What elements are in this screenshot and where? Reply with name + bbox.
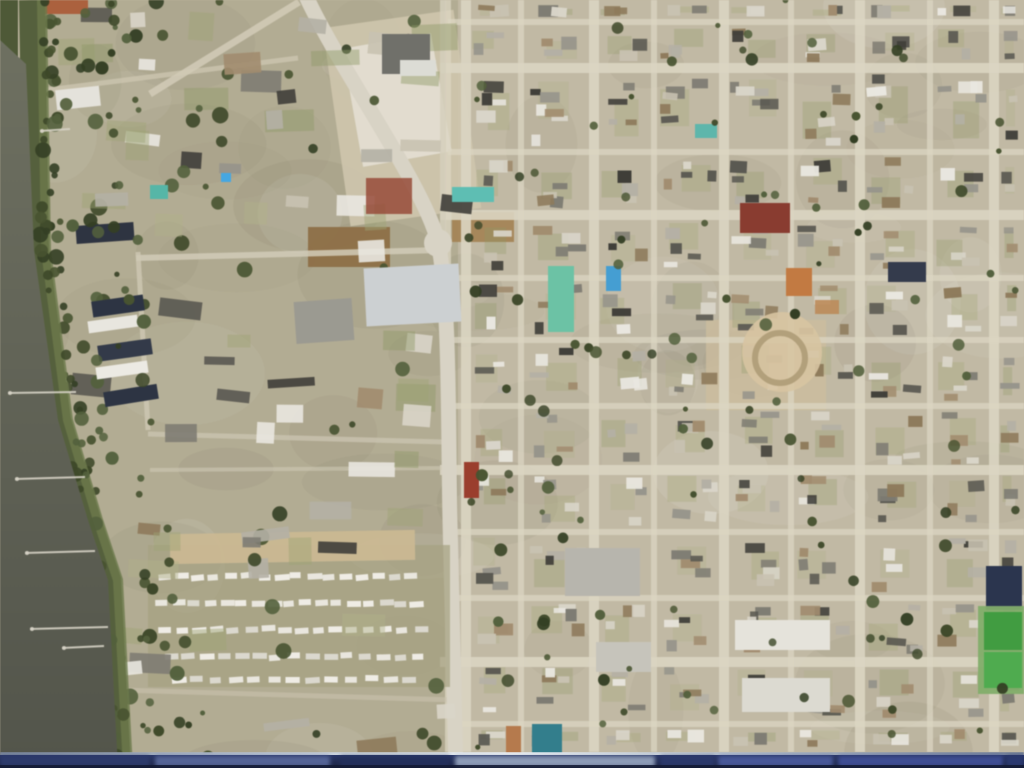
satellite-map-view[interactable] <box>0 0 1024 768</box>
screen <box>0 0 1024 768</box>
satellite-imagery <box>0 0 1024 768</box>
taskbar[interactable] <box>0 752 1024 768</box>
